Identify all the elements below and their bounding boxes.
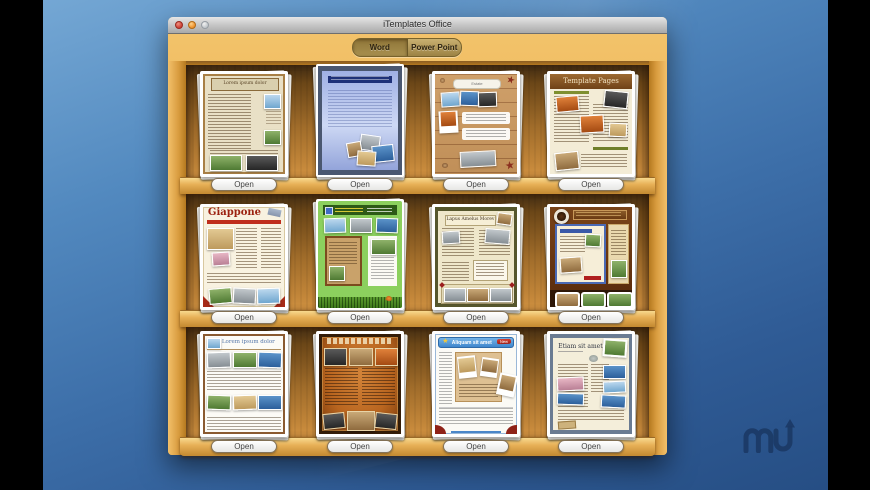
photo-thumb — [264, 94, 281, 109]
template-artwork: ★ Aliquam sit amet New — [435, 334, 517, 434]
document-type-tabs: Word Power Point — [352, 38, 462, 57]
open-button-6[interactable]: Open — [327, 311, 393, 324]
photo-thumb — [357, 151, 377, 167]
crest-icon — [325, 207, 333, 215]
template-artwork: Template Pages — [550, 74, 632, 174]
photo-thumb — [374, 412, 397, 430]
photo-thumb — [207, 338, 220, 349]
title-bar: iTemplates Office — [168, 17, 667, 34]
photo-thumb — [207, 352, 232, 369]
starfish-icon: ★ — [504, 158, 516, 173]
shell-icon — [440, 78, 445, 83]
template-title: Lorem ipsum dolor — [222, 339, 275, 345]
open-button-5[interactable]: Open — [211, 311, 277, 324]
template-artwork — [319, 334, 401, 434]
window-title: iTemplates Office — [168, 19, 667, 29]
photo-thumb — [322, 412, 345, 430]
photo-thumb — [441, 231, 460, 245]
starfish-icon: ★ — [504, 74, 516, 87]
photo-thumb — [459, 150, 496, 168]
photo-thumb — [607, 292, 632, 307]
photo-thumb — [555, 292, 580, 307]
template-artwork: Lorem ipsum dolor — [203, 334, 285, 434]
photo-thumb — [246, 155, 278, 171]
photo-thumb — [207, 395, 232, 411]
polaroid — [480, 357, 500, 378]
template-stack-7[interactable]: Lapus Amelus Morev — [432, 204, 520, 310]
star-icon: ★ — [442, 337, 448, 345]
photo-thumb — [440, 91, 460, 107]
photo-thumb — [581, 292, 606, 307]
photo-thumb — [484, 228, 510, 245]
photo-thumb — [444, 288, 466, 302]
photo-thumb — [603, 90, 629, 109]
open-button-1[interactable]: Open — [211, 178, 277, 191]
photo-thumb — [459, 91, 479, 107]
polaroid — [457, 355, 477, 378]
photo-thumb — [603, 380, 627, 393]
photo-thumb — [329, 266, 344, 281]
template-artwork: Giappone — [203, 207, 285, 307]
photo-thumb — [601, 394, 627, 408]
photo-thumb — [347, 411, 375, 431]
photo-thumb — [585, 234, 602, 248]
template-title: Giappone — [208, 207, 261, 218]
template-stack-6[interactable] — [316, 199, 404, 310]
photo-thumb — [554, 151, 580, 171]
template-title: Template Pages — [550, 74, 632, 89]
open-button-9[interactable]: Open — [211, 440, 277, 453]
template-stack-12[interactable]: Etiam sit amet est — [547, 331, 635, 437]
template-title: Estate — [453, 79, 501, 89]
photo-thumb — [490, 288, 512, 302]
template-artwork — [318, 201, 402, 308]
template-title — [327, 338, 393, 344]
photo-thumb — [376, 218, 399, 234]
photo-thumb — [555, 95, 579, 113]
photo-thumb — [256, 288, 279, 305]
photo-thumb — [371, 239, 396, 255]
photo-thumb — [208, 287, 232, 305]
photo-thumb — [233, 352, 257, 368]
coffee-cup-photo — [554, 209, 569, 224]
template-stack-4[interactable]: Template Pages — [547, 71, 635, 177]
photo-thumb — [608, 123, 627, 138]
polaroid — [439, 111, 459, 134]
photo-thumb — [350, 218, 372, 233]
open-button-7[interactable]: Open — [443, 311, 509, 324]
photo-thumb — [556, 393, 583, 406]
template-stack-2[interactable] — [316, 64, 404, 177]
shelf-frame-left — [168, 61, 186, 455]
photo-thumb — [603, 365, 626, 379]
template-artwork — [550, 207, 632, 307]
template-stack-3[interactable]: Estate ★ ★ — [432, 71, 520, 177]
template-stack-9[interactable]: Lorem ipsum dolor — [200, 331, 288, 437]
photo-thumb — [478, 92, 498, 108]
polaroid — [496, 372, 517, 397]
tab-word[interactable]: Word — [353, 39, 407, 56]
map-photo — [207, 228, 234, 250]
template-artwork: Lapus Amelus Morev — [435, 207, 517, 307]
template-stack-10[interactable] — [316, 331, 404, 437]
photo-thumb — [496, 212, 513, 226]
photo-thumb — [212, 251, 231, 266]
photo-thumb — [264, 130, 281, 145]
shelf-frame-right — [649, 61, 667, 455]
open-button-4[interactable]: Open — [558, 178, 624, 191]
photo-thumb — [560, 256, 583, 273]
photo-thumb — [602, 338, 627, 358]
template-artwork: Etiam sit amet est — [550, 334, 632, 434]
sticker — [267, 208, 281, 218]
photo-thumb — [232, 395, 257, 411]
new-badge: New — [497, 339, 511, 345]
template-stack-1[interactable]: Lorem ipsum dolor — [200, 71, 288, 177]
photo-thumb — [210, 155, 242, 171]
photo-thumb — [467, 288, 489, 302]
template-title: Lorem ipsum dolor — [211, 78, 279, 91]
template-title: Aliquam sit amet — [452, 340, 492, 346]
screen: iTemplates Office Word Power Point Lorem… — [0, 0, 870, 490]
photo-thumb — [258, 352, 283, 369]
macupdate-mu-logo-icon — [742, 417, 796, 453]
template-stack-8[interactable] — [547, 204, 635, 310]
photo-thumb — [375, 348, 398, 366]
photo-thumb — [324, 218, 347, 234]
tab-powerpoint[interactable]: Power Point — [407, 39, 462, 56]
template-stack-5[interactable]: Giappone — [200, 204, 288, 310]
desktop-background: iTemplates Office Word Power Point Lorem… — [43, 0, 828, 490]
open-button-8[interactable]: Open — [558, 311, 624, 324]
open-button-10[interactable]: Open — [327, 440, 393, 453]
template-stack-11[interactable]: ★ Aliquam sit amet New — [432, 331, 520, 437]
template-artwork — [318, 66, 402, 175]
template-artwork: Estate ★ ★ — [435, 74, 517, 174]
open-button-3[interactable]: Open — [443, 178, 509, 191]
photo-thumb — [258, 395, 282, 410]
open-button-2[interactable]: Open — [327, 178, 393, 191]
open-button-12[interactable]: Open — [558, 440, 624, 453]
banner — [558, 420, 577, 429]
template-title: Lapus Amelus Morev — [445, 215, 496, 226]
template-artwork: Lorem ipsum dolor — [203, 74, 285, 174]
photo-thumb — [611, 260, 626, 278]
photo-thumb — [233, 287, 256, 304]
shell-icon — [442, 163, 448, 168]
photo-thumb — [579, 114, 604, 133]
open-button-11[interactable]: Open — [443, 440, 509, 453]
app-window: iTemplates Office Word Power Point Lorem… — [168, 17, 667, 455]
photo-thumb — [556, 376, 583, 391]
photo-thumb — [324, 348, 347, 366]
photo-thumb — [349, 348, 372, 366]
